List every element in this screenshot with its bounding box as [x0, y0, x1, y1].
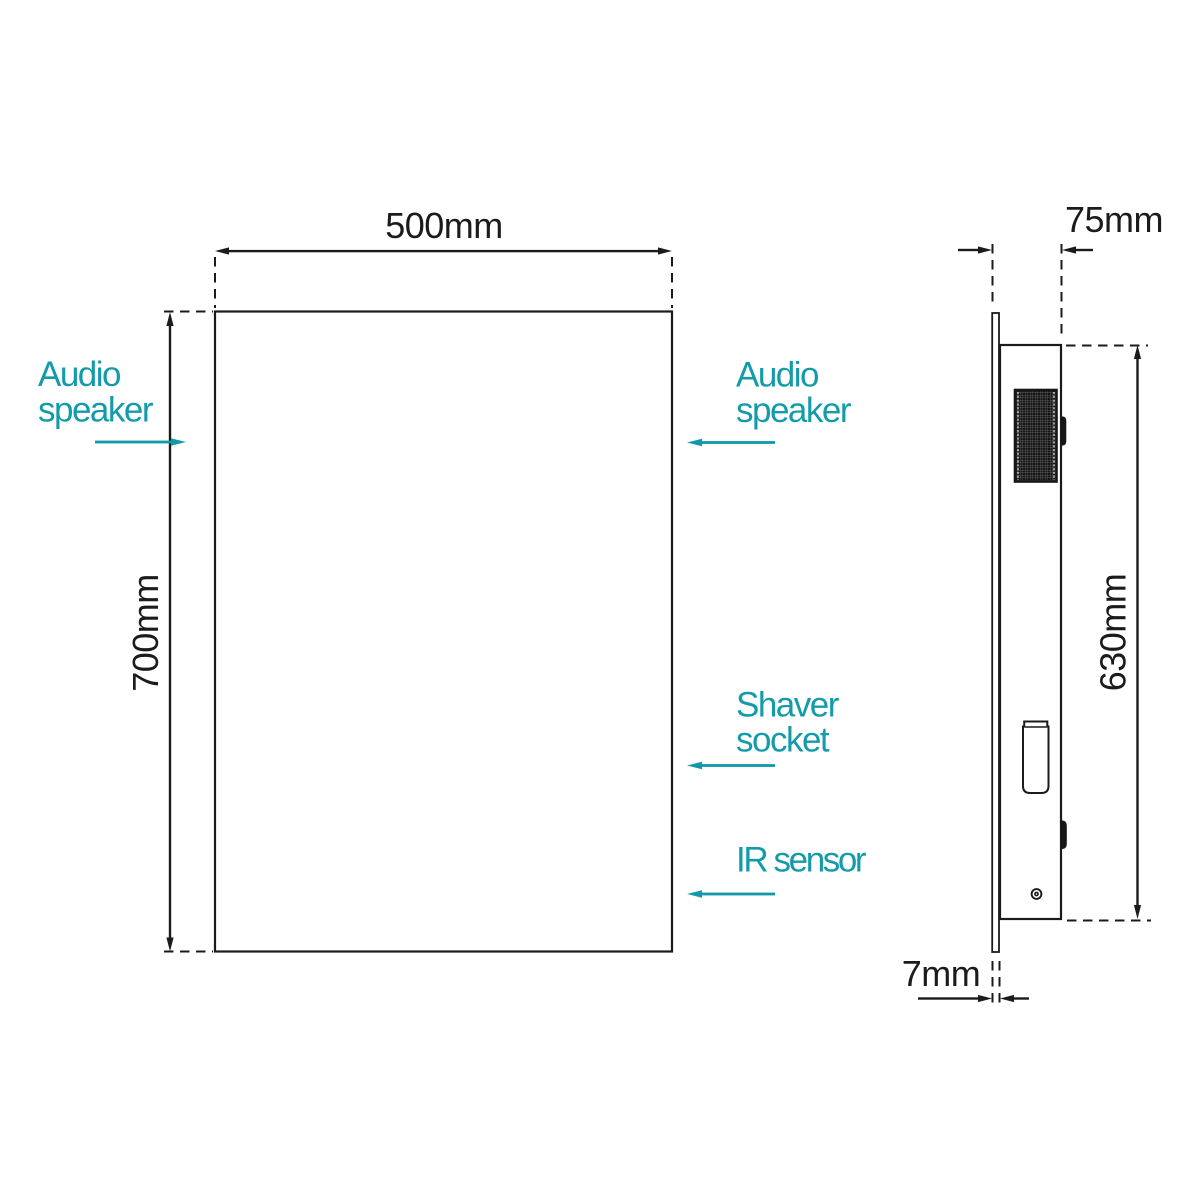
- svg-text:socket: socket: [736, 721, 830, 760]
- svg-text:speaker: speaker: [736, 391, 852, 430]
- svg-text:700mm: 700mm: [125, 574, 166, 692]
- svg-text:630mm: 630mm: [1093, 574, 1134, 692]
- svg-text:7mm: 7mm: [902, 953, 981, 994]
- svg-text:500mm: 500mm: [385, 205, 503, 246]
- svg-text:75mm: 75mm: [1065, 199, 1163, 240]
- svg-text:Shaver: Shaver: [736, 686, 840, 725]
- svg-text:speaker: speaker: [38, 391, 154, 430]
- svg-text:IR sensor: IR sensor: [736, 841, 867, 880]
- svg-text:Audio: Audio: [736, 356, 818, 395]
- svg-text:Audio: Audio: [38, 355, 120, 394]
